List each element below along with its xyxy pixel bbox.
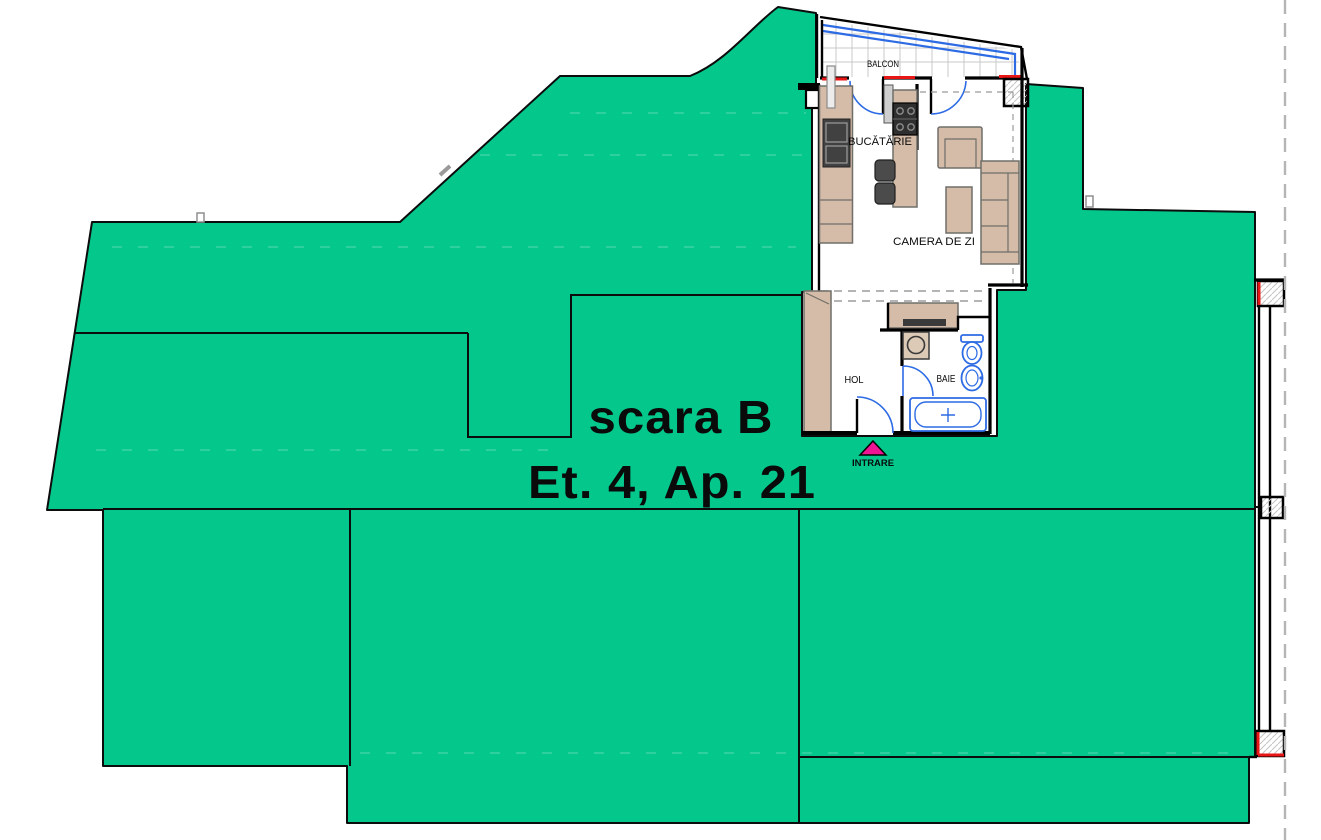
kitchen-window-frame <box>827 66 835 108</box>
bar-stool <box>875 160 895 181</box>
stove <box>893 103 917 135</box>
balcony-door-swing-arc <box>931 81 966 114</box>
coffee-table <box>946 187 972 233</box>
roof-tick-mark <box>440 166 450 175</box>
apartment-floorplan: BALCON <box>798 14 1028 434</box>
living-label: CAMERA DE ZI <box>893 236 975 248</box>
entry-door-swing-arc <box>857 397 893 433</box>
kitchen-cabinet-strip <box>884 85 893 123</box>
room-hall-bath: HOL BAIE <box>802 288 990 434</box>
hall-label: HOL <box>845 375 864 386</box>
sofa <box>981 161 1019 264</box>
toilet <box>961 335 983 364</box>
entrance-label: INTRARE <box>852 458 894 468</box>
bath-door-swing-arc <box>903 366 933 396</box>
kitchen-label: BUCĂTĂRIE <box>848 135 912 148</box>
washing-machine <box>903 332 929 359</box>
balcony-left-wall <box>817 14 822 78</box>
kitchen-sink <box>823 119 850 167</box>
balcony-pillar <box>1004 79 1028 106</box>
bathroom-sink <box>962 366 983 391</box>
title-floor-apartment: Et. 4, Ap. 21 <box>528 456 816 508</box>
roof-tick-mark <box>1086 196 1093 207</box>
pillar <box>1261 497 1283 518</box>
bath-step-wall <box>958 317 990 330</box>
balcony-label: BALCON <box>867 59 899 69</box>
pillar <box>1258 281 1284 306</box>
open-passage-dashes <box>806 291 986 301</box>
floorplan-drawing: BALCON <box>0 0 1321 840</box>
wardrobe <box>804 291 831 433</box>
floorplan-page: BALCON <box>0 0 1321 840</box>
bar-stool <box>875 183 895 204</box>
bathtub <box>910 398 986 431</box>
room-kitchen: BUCĂTĂRIE <box>806 66 917 292</box>
balcony-tile-grid <box>822 18 1019 78</box>
armchair <box>938 127 982 168</box>
bath-label: BAIE <box>937 374 956 385</box>
tv <box>903 319 946 326</box>
balcony-door-swing-arc <box>850 81 883 114</box>
title-staircase: scara B <box>589 391 774 443</box>
pillar <box>1257 731 1284 756</box>
roof-tick-mark <box>197 213 204 222</box>
